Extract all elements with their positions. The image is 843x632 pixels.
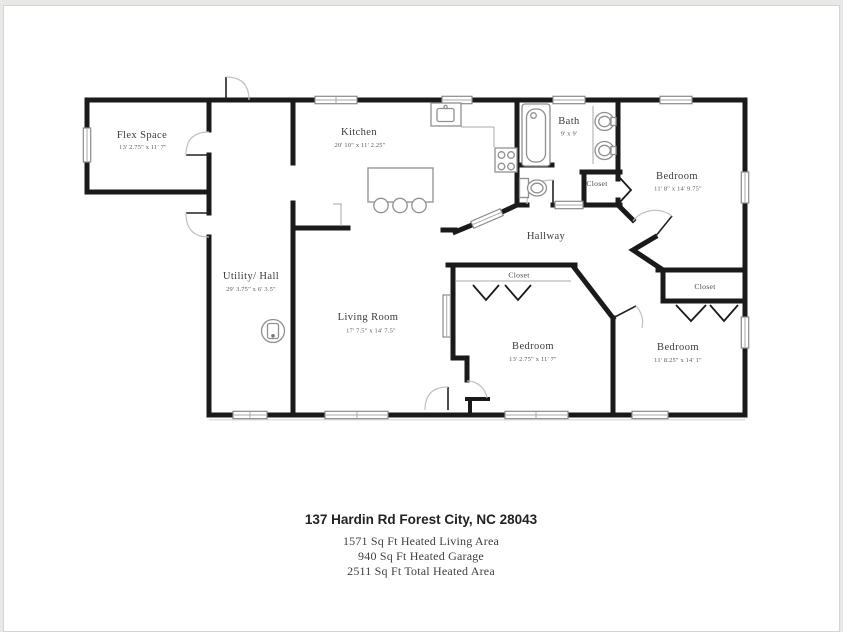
- utility-exterior-door: [186, 213, 209, 237]
- room-label-bedroom-south: Bedroom: [512, 341, 554, 352]
- walls: [87, 100, 745, 415]
- window: [315, 96, 357, 103]
- closet-bifold-icon: [676, 305, 738, 321]
- room-label-bedroom-se: Bedroom: [657, 342, 699, 353]
- bedroom-ne-door: [633, 210, 672, 237]
- room-dims-utility-hall: 29' 3.75" x 6' 3.5": [226, 286, 276, 293]
- room-label-bath: Bath: [558, 116, 580, 127]
- bedroom-south-door: [425, 381, 487, 410]
- room-dims-kitchen: 20' 10" x 11' 2.25": [334, 142, 385, 149]
- windows: [83, 96, 748, 418]
- water-heater-icon: [262, 320, 285, 343]
- pocket-door: [555, 201, 583, 208]
- kitchen-sink-icon: [431, 103, 461, 126]
- address-title: 137 Hardin Rd Forest City, NC 28043: [305, 512, 538, 527]
- room-label-hallway: Hallway: [527, 231, 566, 242]
- window: [660, 96, 692, 103]
- wall-bedroom-south-left: [453, 265, 467, 380]
- counter-edge: [461, 127, 494, 147]
- stove-icon: [495, 148, 517, 172]
- heated-garage-area: 940 Sq Ft Heated Garage: [358, 549, 484, 563]
- window: [741, 172, 748, 203]
- window: [325, 411, 388, 418]
- stool-icon: [374, 198, 426, 212]
- room-label-living-room: Living Room: [338, 312, 399, 323]
- pocket-door: [471, 209, 503, 229]
- wall-hall-chevron: [633, 237, 663, 270]
- closet-label-bath: Closet: [586, 179, 608, 188]
- closet-bifold-icon: [620, 178, 631, 202]
- heated-living-area: 1571 Sq Ft Heated Living Area: [343, 534, 500, 548]
- window: [632, 411, 668, 418]
- flex-space-door: [186, 132, 209, 155]
- wall-bedroom-divider: [573, 266, 613, 415]
- window: [83, 128, 90, 162]
- room-dims-living-room: 17' 7.5" x 14' 7.5": [346, 328, 396, 335]
- toilet-icon: [520, 179, 547, 198]
- room-label-flex-space: Flex Space: [117, 130, 167, 141]
- bathtub-icon: [522, 104, 550, 166]
- sink-icon: [595, 113, 616, 131]
- room-dims-flex-space: 13' 2.75" x 11' 7": [119, 144, 167, 151]
- footer: 137 Hardin Rd Forest City, NC 28043 1571…: [305, 512, 538, 578]
- front-door: [226, 77, 249, 100]
- window: [505, 411, 568, 418]
- room-label-kitchen: Kitchen: [341, 127, 377, 138]
- kitchen-island: [368, 168, 433, 202]
- room-dims-bedroom-se: 11' 8.25" x 14' 1": [654, 357, 702, 364]
- sink-icon: [595, 142, 616, 160]
- pocket-door: [443, 295, 450, 337]
- room-label-bedroom-ne: Bedroom: [656, 171, 698, 182]
- closet-label-hall: Closet: [508, 271, 530, 280]
- window: [741, 317, 748, 348]
- room-dims-bedroom-south: 13' 2.75" x 11' 7": [509, 356, 557, 363]
- fixtures: [262, 103, 617, 343]
- floor-plan: Flex Space 13' 2.75" x 11' 7" Kitchen 20…: [0, 0, 843, 632]
- wall-hall-diagonal-ne: [618, 205, 633, 220]
- bedroom-se-door: [613, 306, 643, 328]
- closet-bifold-icon: [473, 285, 531, 300]
- closet-label-se: Closet: [694, 282, 716, 291]
- room-dims-bath: 9' x 9': [561, 131, 577, 138]
- window: [233, 411, 267, 418]
- total-heated-area: 2511 Sq Ft Total Heated Area: [347, 564, 495, 578]
- room-label-utility-hall: Utility/ Hall: [223, 271, 279, 282]
- room-dims-bedroom-ne: 11' 8" x 14' 9.75": [654, 186, 702, 193]
- wall-closet-bath: [582, 172, 620, 205]
- window: [553, 96, 585, 103]
